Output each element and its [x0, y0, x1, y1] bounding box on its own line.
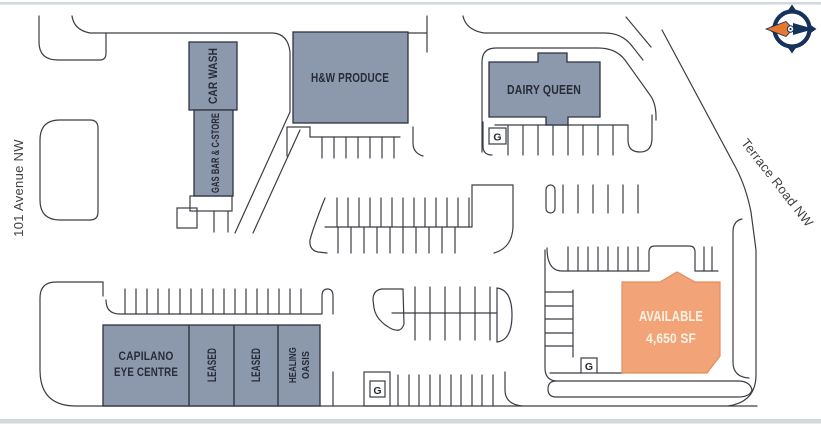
available-curb-east — [733, 219, 749, 378]
label-healing-line1: HEALING — [287, 347, 299, 383]
site-plan: CAR WASH GAS BAR & C-STORE H&W PRODUCE D… — [0, 0, 821, 427]
central-island-curb — [310, 185, 513, 253]
label-dairy-queen: DAIRY QUEEN — [507, 82, 581, 97]
median-island-southeast — [548, 381, 752, 397]
label-leased-1: LEASED — [207, 348, 219, 382]
available-curb-top — [547, 246, 718, 271]
g-marker-label-dq: G — [493, 132, 501, 144]
north-ticks-row — [563, 185, 638, 213]
compass-logo — [766, 5, 817, 54]
strip-parking-curb — [103, 282, 333, 314]
label-gas-bar: GAS BAR & C-STORE — [210, 113, 222, 193]
label-capilano-line1: CAPILANO — [119, 351, 174, 363]
page-top-edge — [0, 2, 821, 5]
available-stalls-west — [545, 250, 573, 381]
hw-parking-curb — [287, 127, 423, 156]
pump-ticks — [214, 211, 228, 232]
north-road-edge-west — [72, 16, 290, 233]
median-island-west — [40, 120, 98, 220]
label-hw-produce: H&W PRODUCE — [311, 70, 389, 85]
label-car-wash: CAR WASH — [206, 48, 220, 104]
stall-pill — [546, 185, 555, 213]
central-island-ticks-top — [337, 198, 469, 227]
street-label-101-avenue: 101 Avenue NW — [11, 139, 26, 237]
entrance-curb-northwest — [39, 16, 106, 60]
north-road-edge-east — [406, 16, 643, 60]
central-island-ticks-bottom — [338, 227, 455, 253]
dq-parking-ticks — [508, 125, 613, 155]
compass-tick-south — [788, 47, 797, 54]
bottom-row-ticks — [398, 375, 493, 406]
page-bottom-edge — [0, 419, 821, 424]
drive-aisle-diagonal — [253, 130, 300, 233]
available-ticks-top — [568, 247, 712, 271]
south-island-ticks-top — [415, 287, 490, 313]
label-capilano-line2: EYE CENTRE — [114, 367, 178, 379]
label-leased-2: LEASED — [251, 348, 263, 382]
bottom-row-end-curb — [505, 372, 522, 406]
compass-hub-dot — [789, 28, 791, 30]
strip-parking-ticks — [125, 289, 301, 314]
south-island-curb — [373, 288, 512, 342]
pump-canopy — [190, 196, 232, 211]
label-available-line1: AVAILABLE — [639, 309, 703, 325]
label-healing-line2: OASIS — [300, 351, 312, 379]
site-plan-canvas: CAR WASH GAS BAR & C-STORE H&W PRODUCE D… — [0, 0, 821, 427]
hw-parking-ticks — [322, 137, 394, 158]
compass-tick-north — [788, 5, 797, 12]
g-marker-label-south: G — [373, 385, 381, 397]
south-island-ticks-bottom — [415, 313, 490, 340]
g-marker-label-available: G — [585, 361, 593, 373]
street-label-terrace-road: Terrace Road NW — [738, 136, 816, 231]
label-available-line2: 4,650 SF — [646, 331, 696, 346]
